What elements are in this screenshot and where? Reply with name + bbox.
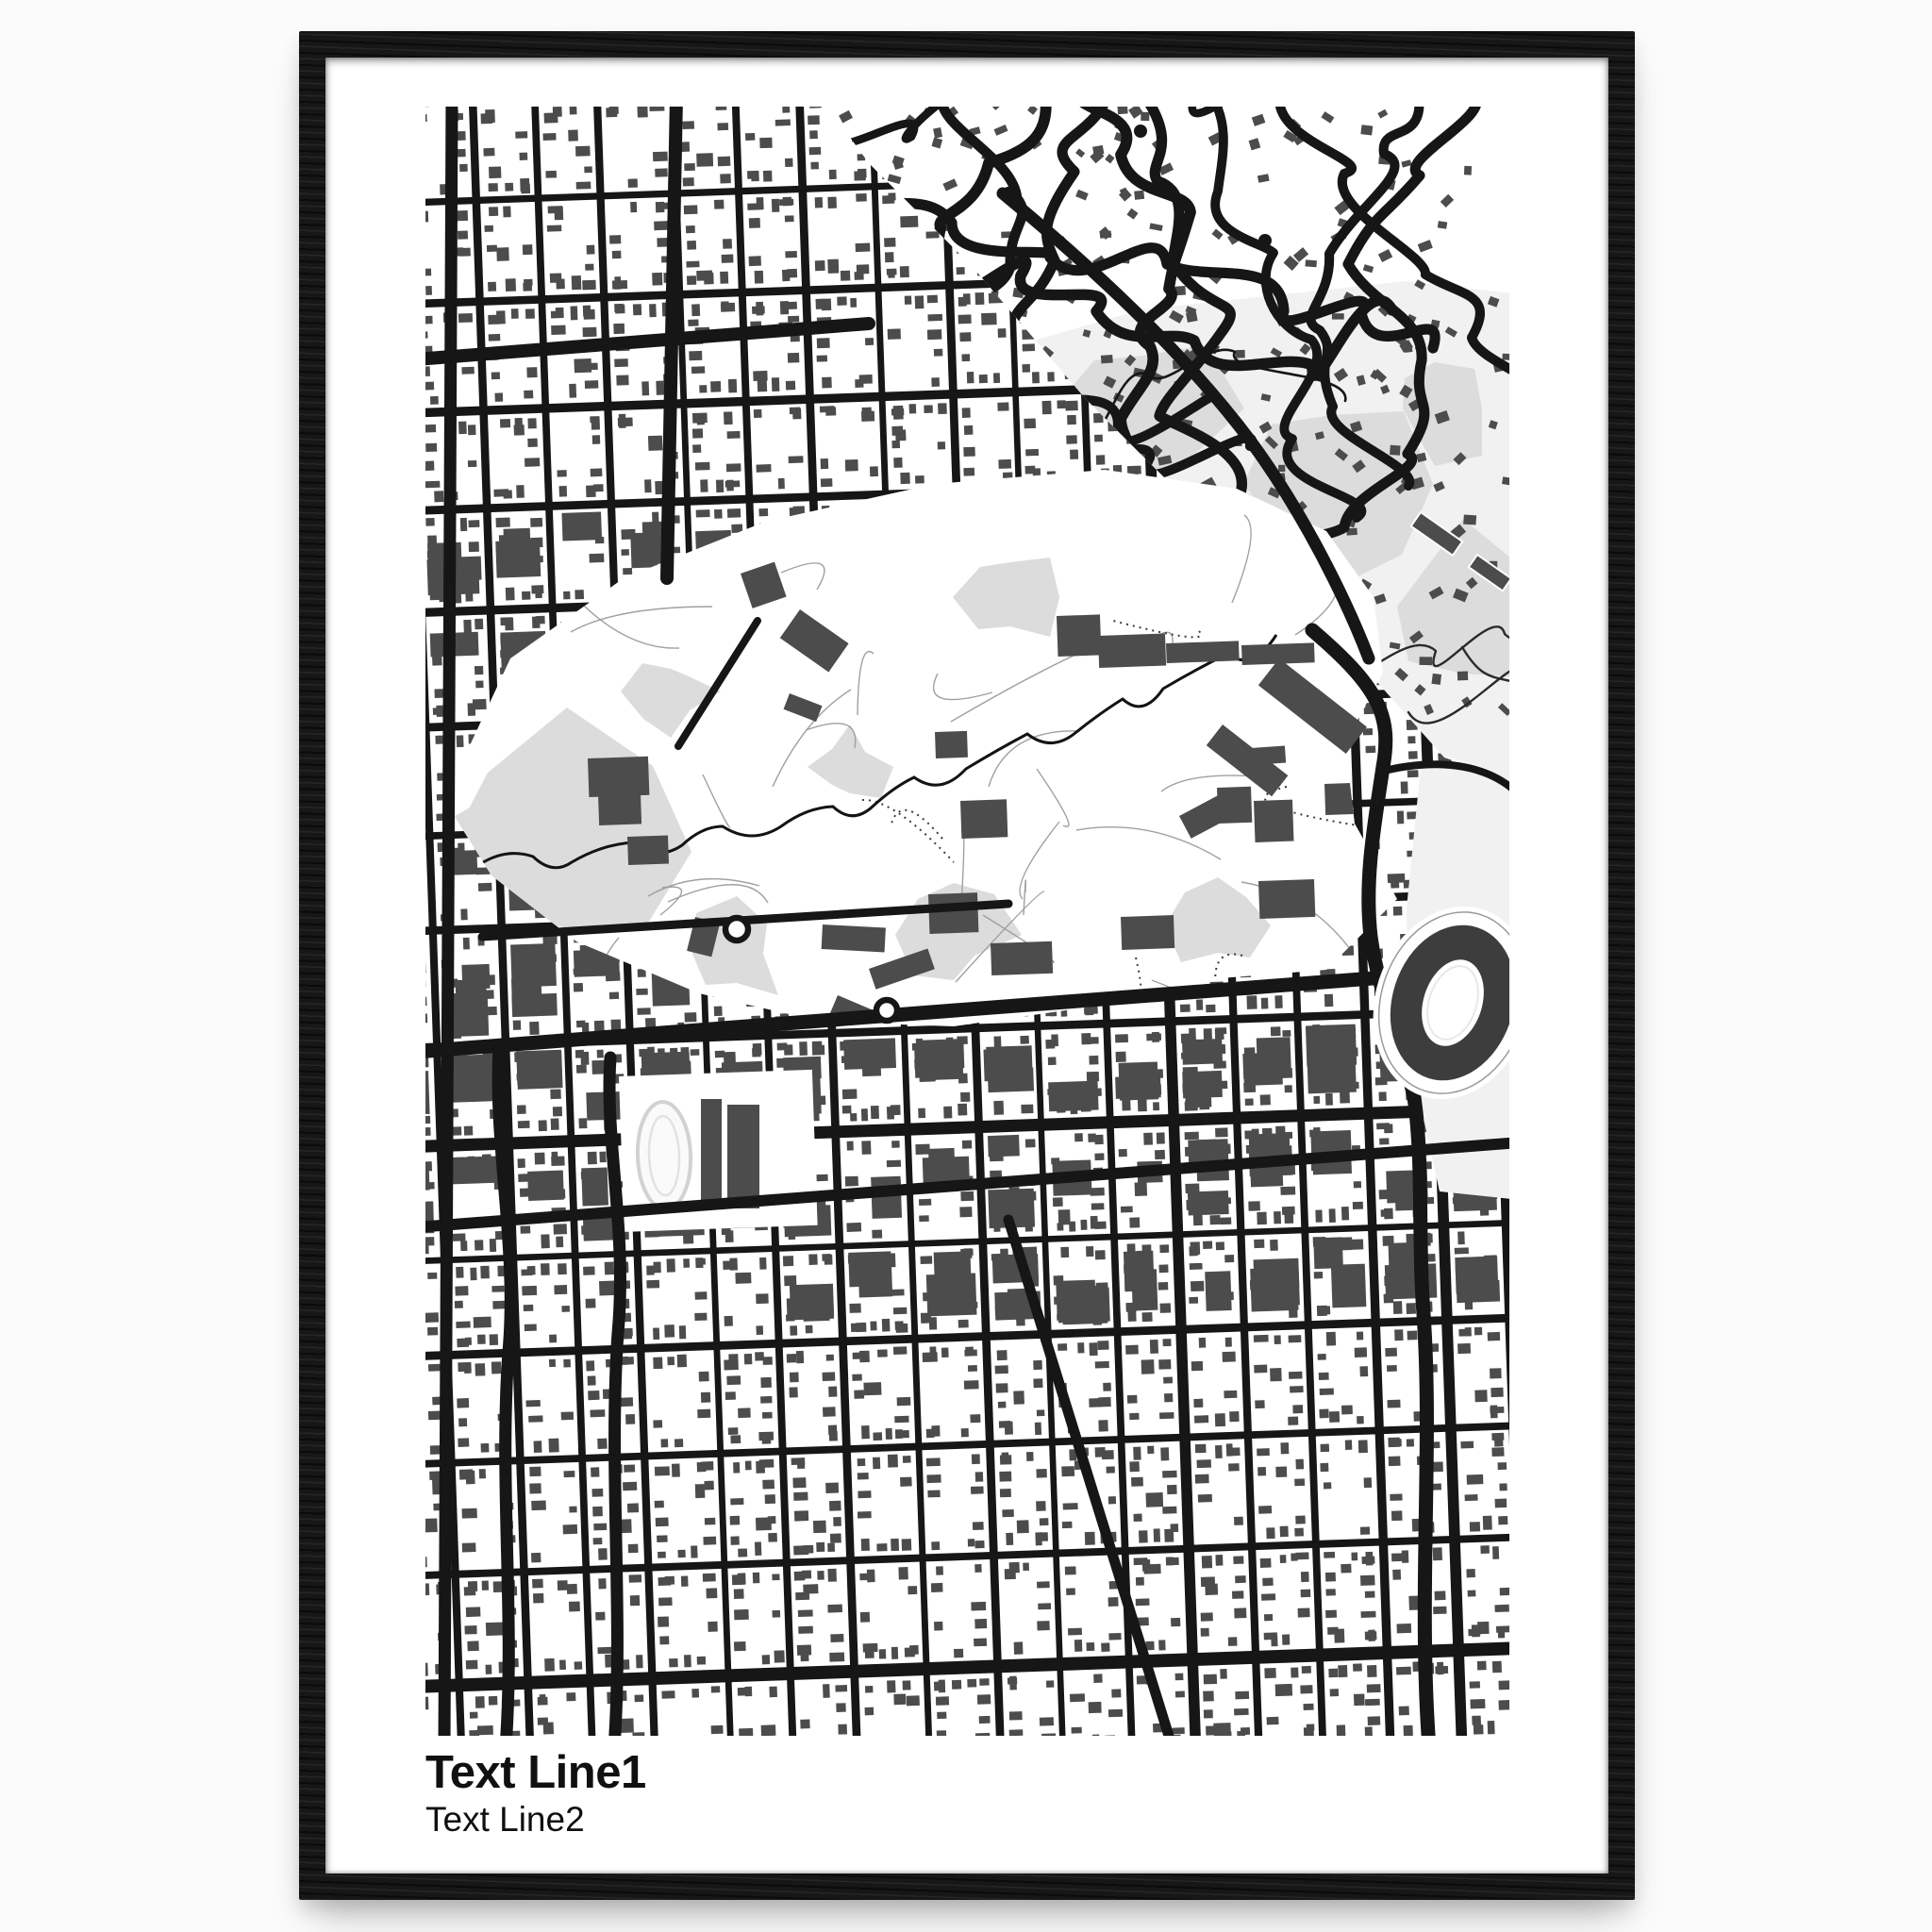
caption-line1: Text Line1 bbox=[425, 1750, 1508, 1796]
poster: Text Line1 Text Line2 bbox=[325, 58, 1608, 1874]
mockup-background: Text Line1 Text Line2 bbox=[0, 0, 1932, 1932]
caption-line2: Text Line2 bbox=[425, 1802, 1508, 1837]
city-map bbox=[425, 107, 1509, 1736]
map-area bbox=[425, 107, 1509, 1736]
poster-frame: Text Line1 Text Line2 bbox=[299, 31, 1635, 1900]
poster-caption: Text Line1 Text Line2 bbox=[425, 1750, 1508, 1837]
